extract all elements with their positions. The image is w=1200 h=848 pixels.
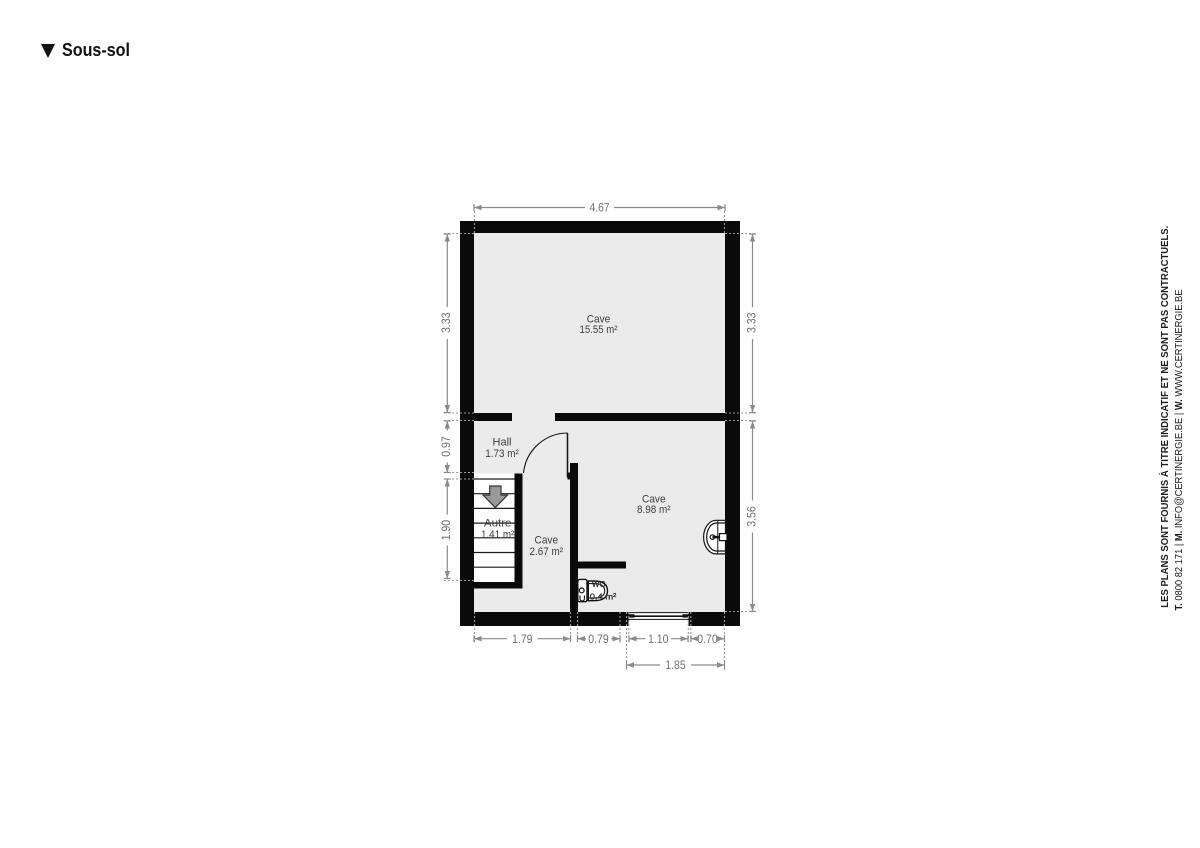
svg-text:0.70: 0.70 [697,632,718,646]
svg-text:2.67 m²: 2.67 m² [530,546,564,558]
svg-text:T. 0800 82 171 | M. INFO@CERTI: T. 0800 82 171 | M. INFO@CERTINERGIE.BE … [1174,289,1185,610]
svg-text:LES PLANS SONT FOURNIS À TITRE: LES PLANS SONT FOURNIS À TITRE INDICATIF… [1158,225,1171,607]
svg-text:0.4 m²: 0.4 m² [590,592,617,602]
svg-text:3.56: 3.56 [745,506,759,527]
svg-text:Cave: Cave [535,535,559,547]
svg-text:1.10: 1.10 [648,632,669,646]
svg-text:Autre: Autre [484,518,512,530]
svg-text:3.33: 3.33 [439,312,453,333]
svg-text:0.79: 0.79 [588,632,609,646]
svg-text:0.97: 0.97 [439,436,453,457]
svg-text:4.67: 4.67 [590,200,610,214]
svg-text:8.98 m²: 8.98 m² [637,504,671,516]
svg-text:1.41 m²: 1.41 m² [481,529,515,541]
svg-text:Sous-sol: Sous-sol [62,40,130,60]
svg-text:1.90: 1.90 [439,520,453,541]
svg-text:1.79: 1.79 [512,632,533,646]
svg-text:1.73 m²: 1.73 m² [485,448,519,460]
svg-text:1.85: 1.85 [665,658,686,672]
svg-text:Hall: Hall [493,437,512,449]
svg-text:15.55 m²: 15.55 m² [580,324,618,336]
svg-text:3.33: 3.33 [745,312,759,333]
svg-text:WC: WC [592,579,606,589]
